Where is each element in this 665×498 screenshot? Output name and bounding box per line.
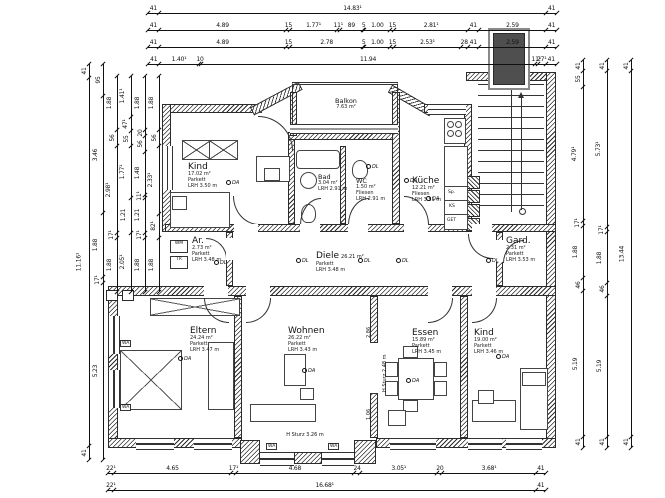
- dimension-line: [117, 76, 118, 292]
- dimension-tick: [87, 458, 92, 463]
- dimension-label: 17¹: [108, 230, 115, 239]
- dimension-tick: [555, 62, 560, 67]
- washing-machine: WM: [170, 240, 188, 253]
- dimension-label: 82¹: [150, 221, 157, 230]
- outlet-dot-icon: [226, 180, 231, 185]
- dimension-line: [131, 76, 132, 292]
- dryer: TR: [170, 256, 188, 269]
- shaft-box-3: [466, 204, 480, 217]
- ceiling-light-symbol: DL: [214, 260, 227, 266]
- burner: [455, 130, 462, 137]
- pillow: [172, 196, 187, 210]
- dimension-label: 1.88: [92, 239, 99, 252]
- dimension-tick: [555, 45, 560, 50]
- dimension-label: 56: [137, 140, 144, 147]
- dimension-label: 1.77¹: [306, 22, 321, 29]
- pillow: [522, 372, 546, 386]
- dimension-chain-right-1: 41554.79¹17¹1.88465.1941: [574, 60, 586, 448]
- bay-pier-left: [240, 440, 260, 464]
- door-arc-essen: [428, 298, 453, 323]
- room-label-balkon: Balkon 7.63 m²: [316, 98, 376, 111]
- dimension-label: 4.68: [289, 465, 302, 472]
- dimension-line: [583, 60, 584, 448]
- door-gap-wc: [348, 224, 368, 232]
- dimension-label: 41: [81, 67, 88, 74]
- burner: [447, 130, 454, 137]
- window-kind-br-bottom-2: [506, 438, 542, 450]
- desk-chair: [264, 168, 280, 181]
- dimension-label: 1.88: [134, 97, 141, 110]
- dimension-chain-top-1: 4114.83¹41: [148, 4, 557, 16]
- dimension-label: 1.88: [572, 246, 579, 259]
- dimension-label: 41: [575, 439, 582, 446]
- bay-pier-right: [354, 440, 376, 464]
- room-label-wohnen: Wohnen 26.22 m² Parkett LRH 3.43 m: [288, 326, 325, 354]
- dimension-tick: [101, 458, 106, 463]
- dimension-label: 41: [150, 5, 157, 12]
- shaft-box-2: [466, 190, 480, 203]
- room-label-diele: Diele26.21 m² Parkett LRH 3.48 m: [316, 244, 364, 274]
- ceiling-outlet-symbol: DA: [404, 178, 417, 184]
- pantry-label: GET: [447, 218, 456, 223]
- burner: [455, 121, 462, 128]
- door-arc-eltern: [204, 298, 229, 323]
- dimension-label: 17¹: [94, 275, 101, 284]
- ceiling-light-symbol: DL: [366, 164, 379, 170]
- dimension-label: 41: [470, 39, 477, 46]
- floor-plan-sheet: Sp. KS GET WM TR Kind 17.02 m² Parkett L…: [0, 0, 665, 498]
- door-gap-wohnen: [246, 286, 270, 296]
- dimension-chain-left-2: 953.461.8817¹5.23: [94, 64, 106, 460]
- ceiling-light-symbol: DL: [358, 258, 371, 264]
- light-dot-icon: [366, 164, 371, 169]
- light-dot-icon: [214, 260, 219, 265]
- light-dot-icon: [358, 258, 363, 263]
- dimension-label: 41: [623, 62, 630, 69]
- dimension-label: 1.77¹: [119, 165, 126, 180]
- door-gap-eltern: [204, 286, 228, 296]
- wall-opening-wohnen-essen: [370, 342, 378, 394]
- door-gap-essen: [428, 286, 452, 296]
- dimension-label: 1.21: [134, 209, 141, 222]
- dimension-line: [108, 490, 546, 491]
- dimension-label: 41: [548, 5, 555, 12]
- dimension-label: 4.89: [216, 39, 229, 46]
- dimension-label: 1.88: [106, 97, 113, 110]
- dimension-tick: [605, 446, 610, 451]
- dimension-label: 41: [470, 22, 477, 29]
- radiator-tag: WA: [120, 340, 131, 347]
- ceiling-outlet-symbol: DA: [226, 180, 239, 186]
- door-arc-bad: [300, 198, 321, 225]
- outlet-dot-icon: [404, 178, 409, 183]
- room-label-eltern: Eltern 24.24 m² Parkett LRH 3.47 m: [190, 326, 219, 354]
- dimension-label: 1.00: [371, 22, 384, 29]
- door-arc-kind-br: [472, 298, 497, 323]
- dimension-label: 1.00: [371, 39, 384, 46]
- dimension-label: 2.33¹: [147, 173, 154, 188]
- dimension-label: 47¹: [122, 119, 129, 128]
- window-essen-bottom: [390, 438, 436, 450]
- dimension-label: 1.21: [120, 209, 127, 222]
- door-gap-ar: [226, 238, 233, 260]
- ceiling-outlet-symbol: DA: [302, 368, 315, 374]
- dimension-label: 13.44: [618, 246, 625, 262]
- dimension-label: 28: [461, 39, 468, 46]
- dimension-tick: [629, 446, 634, 451]
- sink-label: Sp.: [448, 190, 455, 195]
- dimension-chain-top-2: 414.89151.77¹11¹8951.00152.81¹412.5941: [148, 21, 557, 33]
- door-gap-kueche: [404, 224, 428, 232]
- ceiling-light-symbol: DL: [486, 258, 499, 264]
- outlet-dot-icon: [178, 356, 183, 361]
- dimension-label: 2.78: [320, 39, 333, 46]
- room-label-kind-tl: Kind 17.02 m² Parkett LRH 3.50 m: [188, 162, 217, 190]
- dimension-label: 2.81¹: [424, 22, 439, 29]
- dimension-label: 41: [150, 56, 157, 63]
- outlet-dot-icon: [302, 368, 307, 373]
- burner: [447, 121, 454, 128]
- dimension-label: 41: [548, 39, 555, 46]
- dimension-label: 2.59: [506, 22, 519, 29]
- fridge-label: KS: [449, 204, 455, 209]
- dimension-line: [148, 47, 557, 48]
- bay-pier-mid: [294, 452, 322, 464]
- dimension-chain-left-6: 1.88562.33¹82¹1.88: [150, 76, 162, 292]
- dimension-label: 3.46: [92, 148, 99, 161]
- lintel-note-wall: H Sturz 2.48 m: [382, 354, 388, 392]
- opening-dim-upper: 2.86: [366, 327, 372, 338]
- opening-dim-lower: 1.06: [366, 409, 372, 420]
- stair-divider: [511, 84, 512, 212]
- wall-top-left: [162, 104, 262, 113]
- bathtub: [296, 150, 340, 169]
- dimension-label: 41: [150, 22, 157, 29]
- side-table: [300, 388, 314, 400]
- dimension-tick: [581, 446, 586, 451]
- dimension-label: 11.16¹: [75, 253, 82, 271]
- stair-arrow-start: [519, 208, 526, 215]
- dimension-label: 1.88: [596, 251, 603, 264]
- dimension-label: 95: [95, 76, 102, 83]
- dimension-line: [145, 76, 146, 292]
- dimension-label: 5.23: [92, 365, 99, 378]
- window-balcony-door: [290, 124, 398, 134]
- dimension-label: 4.79¹: [571, 147, 578, 162]
- desk-chair: [478, 390, 494, 404]
- dimension-label: 41: [81, 450, 88, 457]
- ceiling-outlet-symbol: DA: [178, 356, 191, 362]
- dimension-line: [148, 30, 557, 31]
- door-arc-entry: [468, 234, 493, 259]
- dimension-label: 41: [623, 439, 630, 446]
- dimension-label: 3.68¹: [482, 465, 497, 472]
- dimension-label: 2.59: [506, 39, 519, 46]
- room-label-wc: WC 1.50 m² Fliesen LRH 2.91 m: [356, 178, 385, 203]
- dimension-label: 41: [548, 22, 555, 29]
- window-eltern-bottom-2: [194, 438, 232, 450]
- dimension-chain-top-3: 414.89152.7851.00152.53¹28412.5941: [148, 38, 557, 50]
- dimension-label: 4.65: [166, 465, 179, 472]
- dimension-label: 1.48: [134, 167, 141, 180]
- wall-left-outer-lower: [108, 286, 118, 448]
- window-kind-tl-left: [162, 146, 173, 190]
- wardrobe: [182, 140, 211, 160]
- wardrobe: [209, 140, 238, 160]
- dimension-label: 46: [599, 286, 606, 293]
- dimension-label: 55: [123, 135, 130, 142]
- dimension-label: 3.05¹: [391, 465, 406, 472]
- ceiling-outlet-symbol: DA: [406, 378, 419, 384]
- dimension-label: 41: [599, 439, 606, 446]
- dimension-label: 16.68¹: [315, 482, 333, 489]
- dimension-label: 46: [575, 281, 582, 288]
- chair: [434, 362, 447, 377]
- room-label-gard: Gard. 2.31 m² Parkett LRH 3.53 m: [506, 236, 535, 264]
- dimension-label: 41: [575, 62, 582, 69]
- room-label-bad: Bad 3.04 m² LRH 2.91 m: [318, 174, 347, 193]
- dimension-label: 41: [537, 482, 544, 489]
- door-gap-kind-br: [472, 286, 496, 296]
- dimension-line: [108, 473, 546, 474]
- dimension-label: 41: [537, 465, 544, 472]
- light-dot-icon: [396, 258, 401, 263]
- ceiling-light-symbol: DL: [296, 258, 309, 264]
- ceiling-outlet-symbol: DA: [426, 196, 439, 202]
- radiator-tag: WA: [328, 443, 339, 450]
- dimension-label: 89: [348, 22, 355, 29]
- door-arc-balcony: [258, 116, 293, 151]
- door-arc-kind-tl: [233, 196, 259, 225]
- dimension-line: [148, 64, 557, 65]
- window-eltern-bottom-1: [136, 438, 174, 450]
- stair-arrow-head: [518, 92, 524, 98]
- dimension-label: 55: [575, 76, 582, 83]
- outlet-dot-icon: [406, 378, 411, 383]
- dimension-line: [89, 64, 90, 460]
- dimension-chain-left-1: 4111.16¹41: [80, 64, 92, 460]
- lintel-note-bay: H Sturz 3.26 m: [270, 432, 340, 438]
- ceiling-outlet-symbol: DA: [496, 354, 509, 360]
- dimension-chain-right-3: 4113.4441: [622, 60, 634, 448]
- dimension-line: [159, 76, 160, 292]
- bed-eltern: [120, 350, 182, 410]
- dimension-label: 2.98¹: [105, 182, 112, 197]
- window-kind-br-bottom-1: [468, 438, 502, 450]
- dimension-label: 27¹: [537, 56, 546, 63]
- dimension-label: 56: [109, 135, 116, 142]
- window-eltern-left-1: [108, 316, 120, 354]
- wall-essen-kind: [460, 296, 468, 438]
- light-dot-icon: [486, 258, 491, 263]
- washbasin: [300, 172, 317, 189]
- chair: [434, 381, 447, 396]
- wall-eltern-wohnen: [234, 296, 242, 438]
- sofa: [250, 404, 316, 422]
- dimension-tick: [555, 28, 560, 33]
- dimension-label: 5.19: [572, 358, 579, 371]
- dimension-label: 1.88: [134, 259, 141, 272]
- shaft-box-1: [466, 176, 480, 189]
- dimension-line: [103, 64, 104, 460]
- door-gap-bad: [300, 224, 320, 232]
- radiator-tag: WA: [266, 443, 277, 450]
- room-label-kind-br: Kind 19.00 m² Parkett LRH 3.46 m: [474, 328, 503, 356]
- outlet-dot-icon: [426, 196, 431, 201]
- dimension-label: 2.05¹: [119, 255, 126, 270]
- dimension-label: 11.94: [360, 56, 376, 63]
- window-eltern-left-2: [108, 370, 120, 408]
- door-gap-entry: [472, 224, 492, 232]
- light-dot-icon: [296, 258, 301, 263]
- dimension-line: [631, 60, 632, 448]
- dimension-label: 1.88: [148, 259, 155, 272]
- stair-arrow-line: [521, 96, 522, 210]
- dimension-chain-right-2: 415.73¹17¹1.88465.1941: [598, 60, 610, 448]
- door-arc-wohnen: [246, 298, 271, 323]
- dimension-label: 41: [599, 62, 606, 69]
- dimension-chain-bottom-2: 22¹16.68¹41: [108, 481, 546, 493]
- dimension-chain-bottom-1: 22¹4.6517¹4.68243.05¹203.68¹41: [108, 464, 546, 476]
- dimension-tick: [555, 11, 560, 16]
- dimension-label: 1.41¹: [119, 89, 126, 104]
- dimension-label: 41: [150, 39, 157, 46]
- dimension-label: 4.89: [216, 22, 229, 29]
- sideboard: [388, 410, 406, 426]
- dimension-label: 5.73¹: [595, 142, 602, 157]
- ceiling-light-symbol: DL: [396, 258, 409, 264]
- dimension-line: [607, 60, 608, 448]
- dimension-label: 1.40¹: [172, 56, 187, 63]
- dimension-chain-top-4: 411.40¹1011.9411¹27¹41: [148, 55, 557, 67]
- radiator-tag: WA: [120, 404, 131, 411]
- dimension-line: [148, 13, 557, 14]
- dimension-chain-left-4: 1.41¹47¹551.77¹1.212.05¹: [122, 76, 134, 292]
- dimension-label: 14.83¹: [343, 5, 361, 12]
- window-kueche-top: [428, 104, 466, 115]
- dimension-label: 1.88: [148, 97, 155, 110]
- door-gap-kind-tl: [234, 224, 258, 232]
- dimension-label: 41: [548, 56, 555, 63]
- dimension-label: 56: [151, 135, 158, 142]
- dimension-label: 2.53¹: [420, 39, 435, 46]
- dimension-label: 1.88: [106, 259, 113, 272]
- room-label-essen: Essen 15.89 m² Parkett LRH 3.45 m: [412, 328, 441, 356]
- dimension-label: 5.19: [596, 360, 603, 373]
- outlet-dot-icon: [496, 354, 501, 359]
- kitchen-counter: [444, 146, 468, 188]
